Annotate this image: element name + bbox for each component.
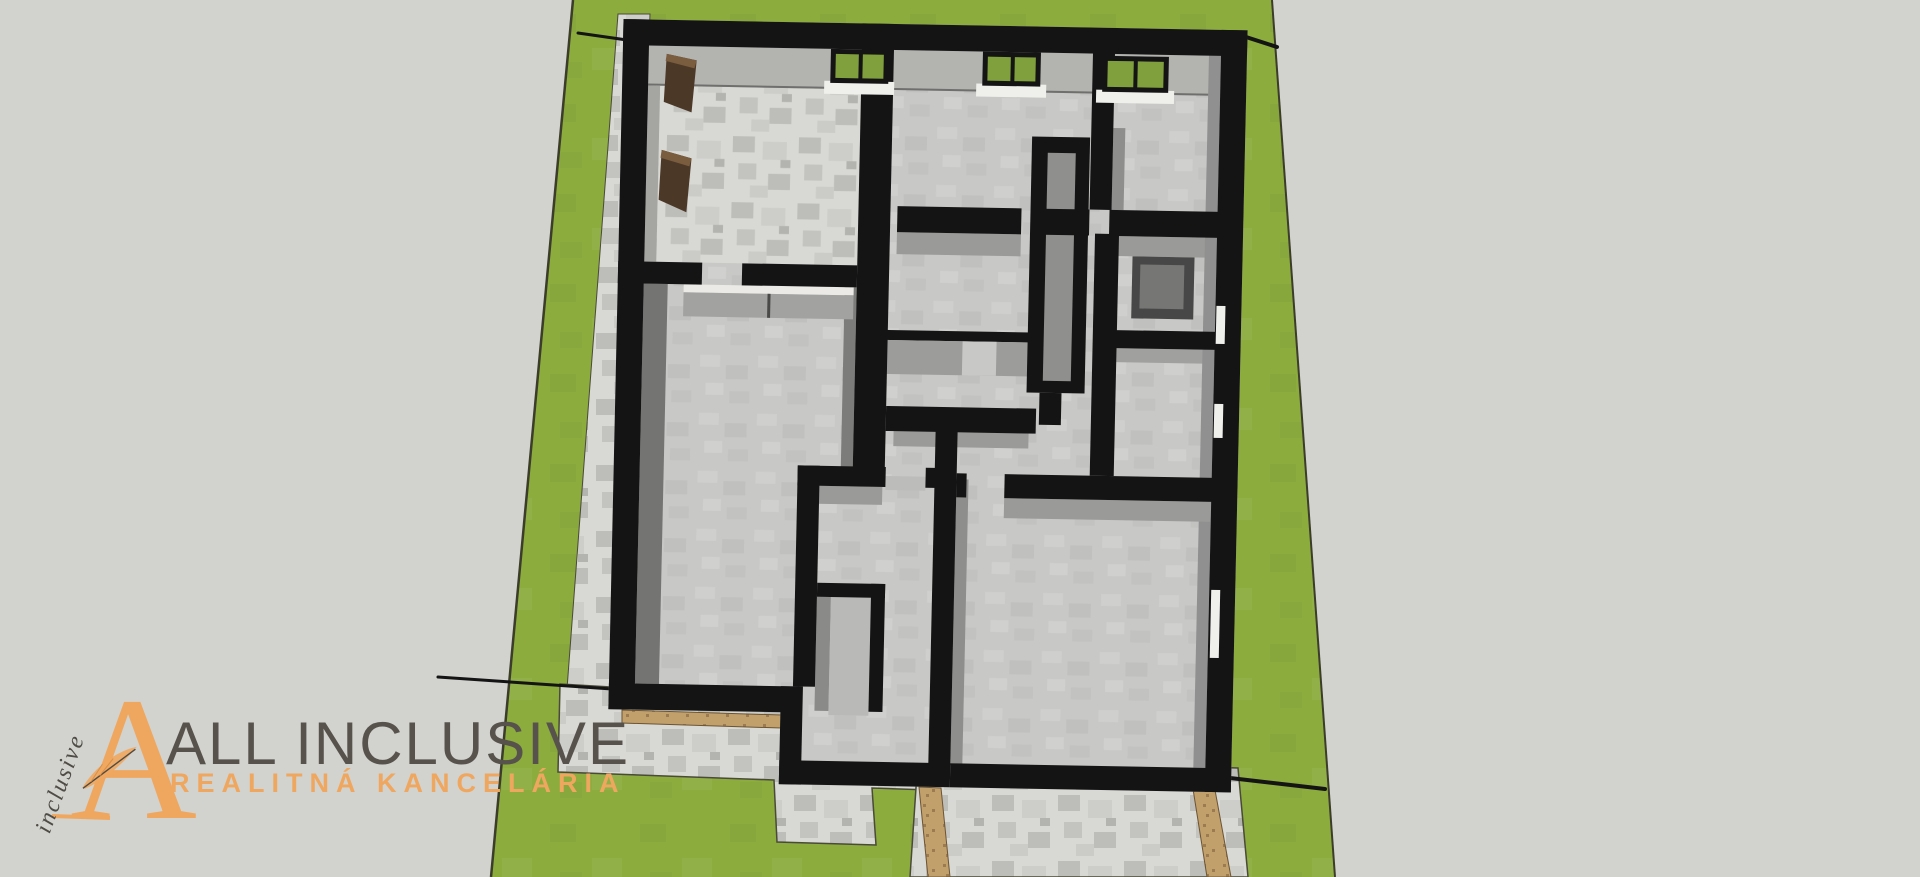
wall-segment: [1109, 210, 1220, 238]
window-1: [824, 49, 895, 95]
wall-segment: [897, 206, 1022, 234]
window-3: [1096, 56, 1175, 104]
window-pane: [987, 57, 1011, 81]
wall-segment: [950, 763, 1232, 792]
window-pane: [1014, 57, 1036, 81]
window-slit: [1210, 590, 1220, 658]
window-pane: [835, 54, 859, 78]
window-pane: [1137, 61, 1164, 87]
wall-segment: [742, 263, 857, 287]
window-pane: [862, 54, 884, 78]
wall-segment: [779, 760, 951, 787]
shower-block: [1131, 256, 1194, 319]
wall-segment: [608, 683, 799, 712]
window-slit: [1216, 306, 1226, 344]
closet-wall: [868, 584, 885, 712]
floorplan-render: A inclusive ALL INCLUSIVE REALITNÁ KANCE…: [0, 0, 1920, 877]
wall-segment: [1004, 474, 1214, 502]
kitchen-partition: [884, 330, 1031, 377]
wall-segment: [1109, 330, 1217, 350]
chimney-core: [1026, 136, 1090, 425]
wall-segment: [1043, 209, 1090, 236]
window-slit: [1214, 404, 1224, 438]
site-svg: [0, 0, 1920, 877]
house-floor-plan: [607, 19, 1248, 792]
wall-segment: [886, 406, 1037, 434]
window-pane: [1107, 61, 1134, 87]
wall-segment: [956, 473, 967, 497]
wall-segment: [618, 261, 702, 285]
wardrobe: [683, 284, 854, 319]
window-2: [976, 51, 1047, 97]
